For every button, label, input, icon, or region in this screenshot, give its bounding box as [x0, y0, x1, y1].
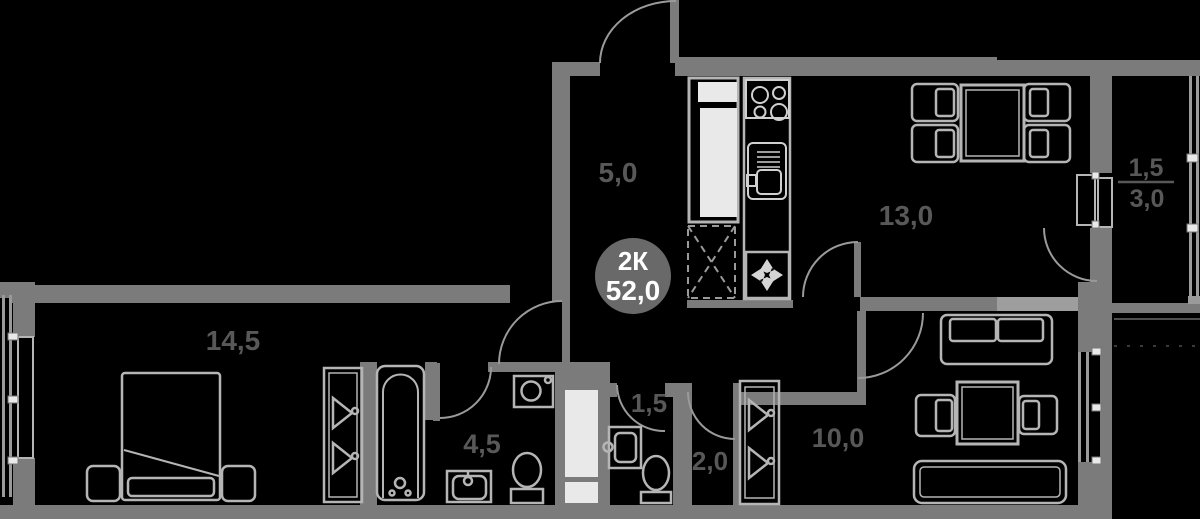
balcony-door-swing — [1044, 228, 1097, 281]
room-label-room: 10,0 — [812, 423, 865, 453]
balcony-area-full: 3,0 — [1130, 185, 1165, 213]
wall-segment — [675, 57, 997, 76]
bedroom-furniture — [87, 368, 362, 502]
door-leaf — [433, 363, 440, 421]
nightstand — [222, 466, 255, 501]
wall-segment — [1112, 303, 1200, 313]
wall-segment — [687, 300, 793, 308]
tall-cabinet-fridge — [689, 78, 738, 222]
dining-chair — [1024, 125, 1070, 162]
duct-opening — [565, 390, 598, 477]
hanger-hook — [768, 458, 774, 464]
wall-segment — [1078, 282, 1100, 352]
room-label-bathroom: 4,5 — [463, 429, 501, 459]
bathroom-sink-icon — [447, 471, 491, 502]
hanger-hook — [352, 408, 358, 414]
table — [957, 382, 1018, 444]
door-swing-arc — [858, 313, 923, 378]
door-leaf — [854, 242, 861, 297]
window-mullion — [1092, 404, 1101, 411]
window-mullion — [8, 457, 18, 464]
balcony-door-unit — [1077, 172, 1112, 228]
bed — [122, 373, 220, 500]
badge-type: 2К — [618, 246, 648, 276]
door-swing-arc — [803, 242, 858, 297]
bedroom-door — [433, 363, 491, 421]
door-swing-arc — [499, 301, 562, 364]
room-label-wc-small: 1,5 — [631, 388, 667, 418]
washing-machine-icon — [514, 376, 553, 407]
vent-flower — [751, 259, 783, 291]
wall-segment — [997, 297, 1090, 311]
sofa — [941, 315, 1052, 364]
wall-segment — [552, 62, 600, 76]
corridor-door — [499, 301, 562, 364]
nightstand — [87, 466, 120, 501]
wall-segment — [0, 505, 1112, 519]
room-door — [858, 313, 923, 378]
hanger-icon — [333, 398, 352, 428]
vent-shaft-icon — [746, 252, 789, 298]
window-mullion — [1092, 348, 1101, 355]
wall-segment — [857, 311, 866, 392]
window-mullion — [8, 333, 18, 340]
hanger-hook — [768, 410, 774, 416]
window-mullion — [1187, 224, 1198, 232]
wall-segment — [860, 297, 997, 311]
wc-sink-icon — [604, 427, 642, 468]
wall-segment — [552, 62, 570, 302]
balcony-area-fraction: 1,5 3,0 — [1118, 154, 1174, 213]
kitchen-fixtures — [688, 78, 790, 299]
chair — [916, 395, 955, 436]
dining-chair — [912, 125, 958, 162]
dining-table — [961, 85, 1024, 161]
wc-small-fixtures — [604, 427, 672, 503]
wc-door — [688, 392, 735, 439]
wall-segment — [997, 60, 1200, 76]
window-mullion — [8, 396, 18, 403]
wall-segment — [10, 285, 510, 303]
hanger-icon — [749, 448, 768, 478]
dining-chair — [1024, 84, 1070, 121]
room-label-kitchen-living: 13,0 — [879, 200, 934, 231]
door-swing-arc — [688, 392, 735, 439]
room-label-wc: 2,0 — [692, 446, 728, 476]
wall-segment — [562, 301, 570, 364]
toilet-icon — [511, 453, 543, 503]
window-mullion — [1092, 457, 1101, 464]
bathtub-icon — [377, 366, 424, 500]
door-leaf — [670, 0, 679, 63]
balcony-area-reduced: 1,5 — [1129, 154, 1164, 182]
wall-segment — [488, 362, 610, 372]
entrance-door — [600, 0, 679, 63]
toilet-icon — [641, 456, 671, 503]
floor-plan: 2К 52,0 5,0 13,0 14,5 4,5 1,5 2,0 10,0 1… — [0, 0, 1200, 519]
hanger-hook — [352, 453, 358, 459]
door-swing-arc — [600, 1, 676, 63]
dining-chair — [912, 84, 958, 121]
closet-reserved-icon — [688, 226, 735, 298]
living-room-door — [803, 242, 861, 297]
dresser-inner — [920, 467, 1060, 497]
door-swing-arc — [440, 367, 491, 418]
living-room-furniture — [912, 84, 1070, 162]
badge-area: 52,0 — [606, 275, 661, 306]
room-label-hall: 5,0 — [599, 157, 638, 188]
wall-segment — [1100, 282, 1112, 519]
room-furniture — [740, 315, 1066, 504]
wardrobe — [324, 368, 362, 502]
room-label-bedroom: 14,5 — [206, 325, 261, 356]
door-swing-arc — [1044, 228, 1097, 281]
wall-segment — [1090, 76, 1112, 173]
stove-icon — [746, 80, 789, 120]
balcony-glazing — [1187, 76, 1200, 304]
duct-opening — [565, 482, 598, 503]
hanger-icon — [333, 443, 352, 473]
window-mullion — [1187, 154, 1198, 162]
kitchen-sink-icon — [747, 143, 786, 199]
wall-segment — [737, 392, 866, 405]
chair — [1019, 396, 1057, 434]
room-window — [1078, 348, 1101, 464]
wall-segment — [1078, 462, 1100, 519]
apartment-badge: 2К 52,0 — [595, 238, 671, 314]
